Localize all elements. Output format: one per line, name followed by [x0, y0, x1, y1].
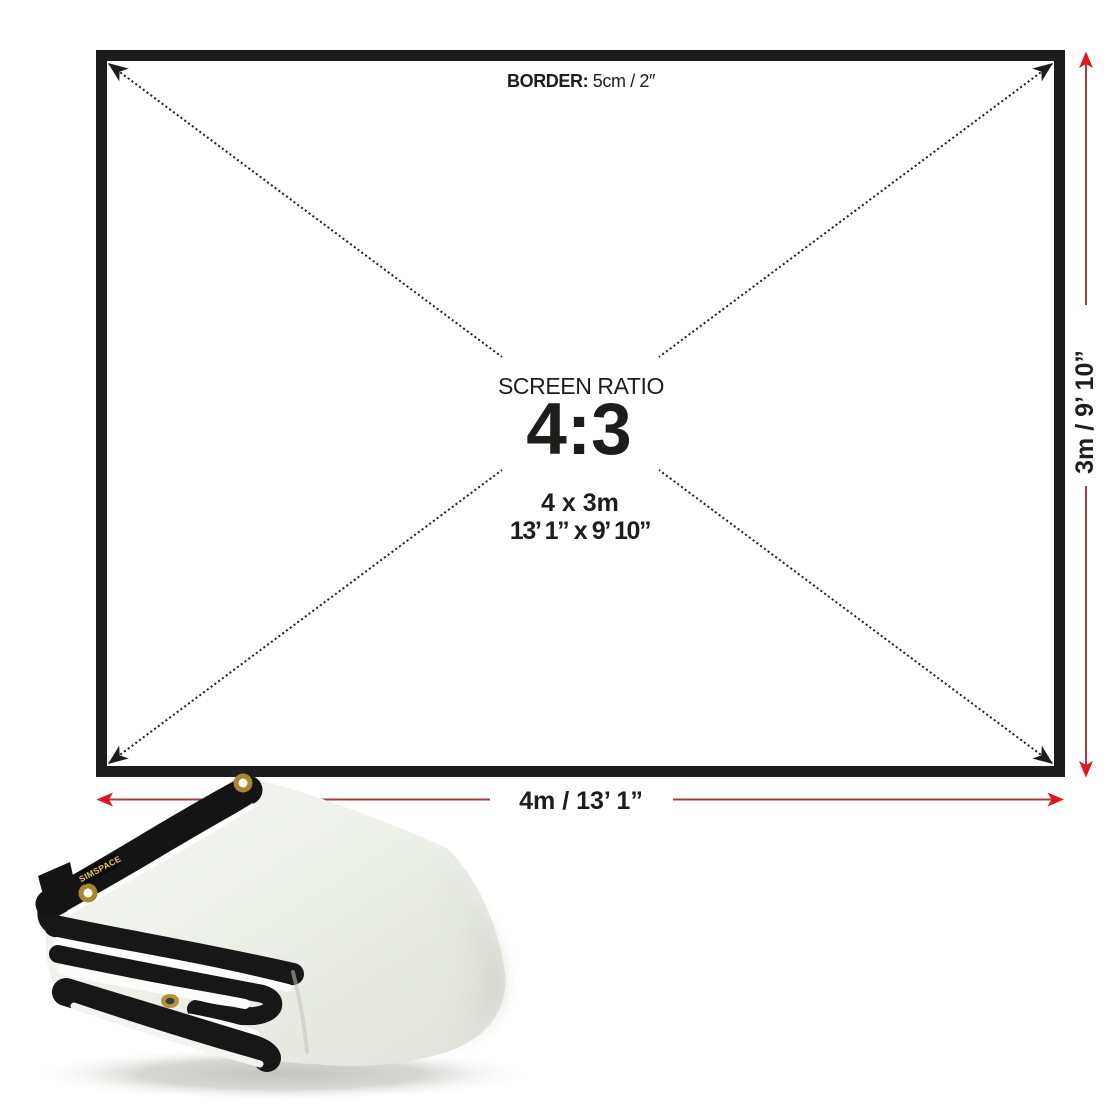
svg-text:13’ 1” x 9’ 10”: 13’ 1” x 9’ 10” — [510, 517, 650, 545]
svg-text:4:3: 4:3 — [526, 389, 632, 470]
svg-text:4 x 3m: 4 x 3m — [541, 489, 619, 517]
svg-text:3m / 9’ 10”: 3m / 9’ 10” — [1071, 350, 1099, 474]
svg-text:4m / 13’ 1”: 4m / 13’ 1” — [519, 787, 643, 815]
svg-text:BORDER: 5cm / 2″: BORDER: 5cm / 2″ — [507, 71, 656, 91]
